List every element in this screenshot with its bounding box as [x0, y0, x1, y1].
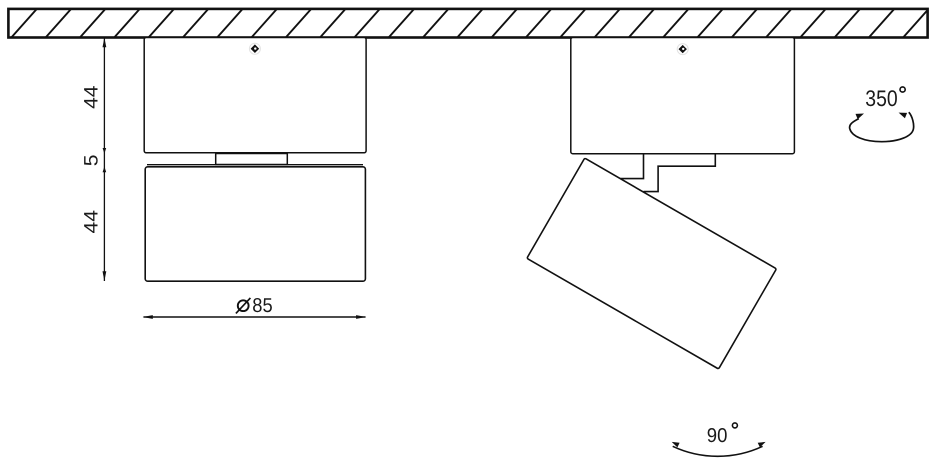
svg-text:350: 350	[865, 86, 897, 111]
svg-text:44: 44	[80, 85, 102, 109]
svg-text:85: 85	[252, 295, 272, 317]
svg-text:44: 44	[80, 210, 102, 234]
svg-text:5: 5	[80, 154, 102, 166]
svg-text:90: 90	[707, 425, 728, 447]
